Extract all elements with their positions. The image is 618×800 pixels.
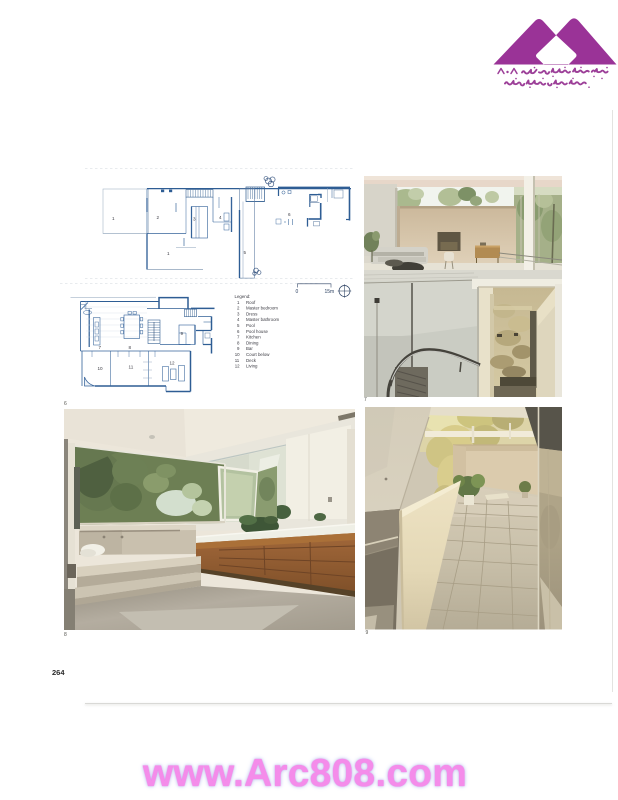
svg-text:6: 6	[288, 212, 291, 217]
svg-text:1: 1	[237, 300, 240, 305]
svg-text:Bar: Bar	[246, 346, 253, 351]
svg-text:11: 11	[235, 358, 240, 363]
svg-text:Roof: Roof	[246, 300, 256, 305]
svg-text:7: 7	[99, 345, 102, 350]
svg-text:10: 10	[98, 366, 104, 371]
svg-text:2: 2	[237, 306, 240, 311]
svg-text:9: 9	[181, 331, 184, 336]
svg-text:4: 4	[219, 215, 222, 220]
svg-text:Dining: Dining	[246, 340, 259, 345]
svg-text:11: 11	[129, 365, 134, 370]
svg-text:Court below: Court below	[246, 352, 270, 357]
svg-text:5: 5	[237, 323, 240, 328]
svg-text:4: 4	[237, 317, 240, 322]
svg-text:1: 1	[112, 216, 115, 221]
svg-text:12: 12	[170, 361, 176, 366]
svg-text:Deck: Deck	[246, 358, 257, 363]
svg-text:10: 10	[235, 352, 240, 357]
svg-text:0: 0	[296, 289, 299, 295]
svg-text:8: 8	[237, 340, 240, 345]
svg-text:Legend:: Legend:	[235, 294, 251, 299]
svg-text:12: 12	[235, 364, 240, 369]
svg-text:1: 1	[167, 251, 170, 256]
svg-text:7: 7	[237, 335, 240, 340]
svg-text:Pool house: Pool house	[246, 329, 269, 334]
svg-text:3: 3	[237, 311, 240, 316]
svg-text:Pool: Pool	[246, 323, 255, 328]
svg-text:2: 2	[157, 215, 160, 220]
svg-text:3: 3	[193, 217, 196, 222]
svg-text:15m: 15m	[325, 289, 335, 295]
svg-text:Dress: Dress	[246, 311, 258, 316]
svg-text:Living: Living	[246, 364, 258, 369]
svg-text:9: 9	[237, 346, 240, 351]
svg-text:8: 8	[129, 345, 132, 350]
svg-text:5: 5	[244, 250, 247, 255]
svg-text:Master bedroom: Master bedroom	[246, 306, 278, 311]
svg-text:Kitchen: Kitchen	[246, 335, 261, 340]
svg-text:Master bathroom: Master bathroom	[246, 317, 280, 322]
svg-text:6: 6	[237, 329, 240, 334]
